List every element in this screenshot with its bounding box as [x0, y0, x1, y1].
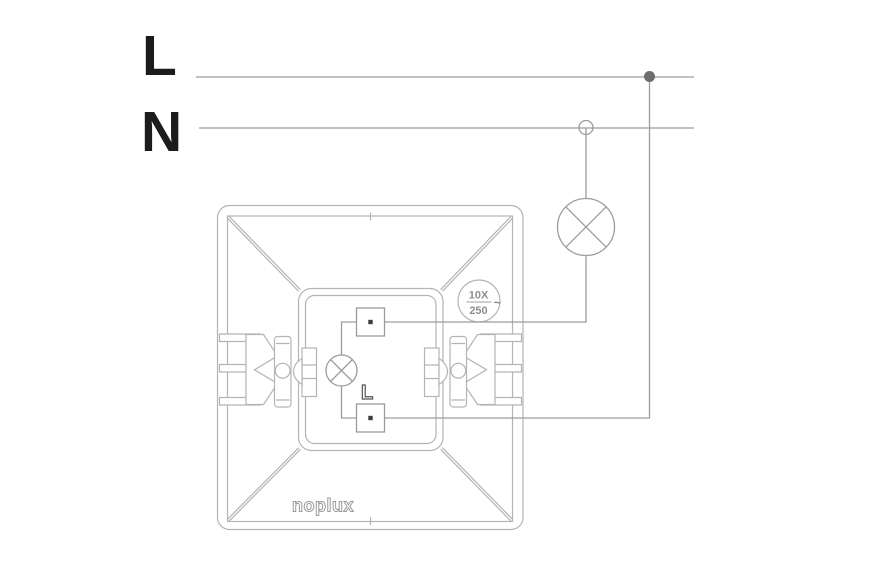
claw-screw-icon-left: [275, 363, 290, 378]
rating-badge: 10X 250 ~: [458, 280, 502, 322]
claw-jaws-left: [246, 335, 278, 405]
junction-dot-icon: [644, 71, 655, 82]
internal-link-wire: [342, 322, 357, 418]
switch-outer-frame: [218, 206, 524, 530]
claw-screw-icon-right: [451, 363, 466, 378]
claw-mount-bump-right: [439, 359, 448, 385]
terminal-top-contact-dot: [368, 320, 372, 324]
diagram-drawing: 10X 250 ~ noplux L: [0, 0, 887, 580]
claw-mount-bump-left: [294, 359, 303, 385]
brand-logo: noplux: [292, 496, 354, 516]
mounting-claw-left: [220, 334, 317, 407]
rating-voltage: 250: [469, 305, 487, 317]
corner-bevel-top-left: [227, 216, 300, 291]
corner-bevel-bottom-left: [227, 448, 300, 522]
mounting-claw-right: [425, 334, 522, 407]
corner-bevel-bottom-right: [441, 448, 513, 522]
claw-mount-strip-right: [425, 348, 440, 397]
wiring-diagram: L N: [0, 0, 887, 580]
terminal-l-marking: L: [361, 382, 373, 404]
rating-ac-symbol: ~: [494, 295, 502, 310]
claw-mount-strip-left: [302, 348, 317, 397]
indicator-lamp-icon: [326, 355, 357, 386]
rating-current: 10X: [469, 290, 489, 302]
switch-back-view: [218, 206, 524, 530]
claw-jaws-right: [464, 335, 496, 405]
lamp-icon: [558, 199, 615, 256]
terminal-bottom-contact-dot: [368, 416, 372, 420]
internal-circuit: [326, 308, 385, 432]
